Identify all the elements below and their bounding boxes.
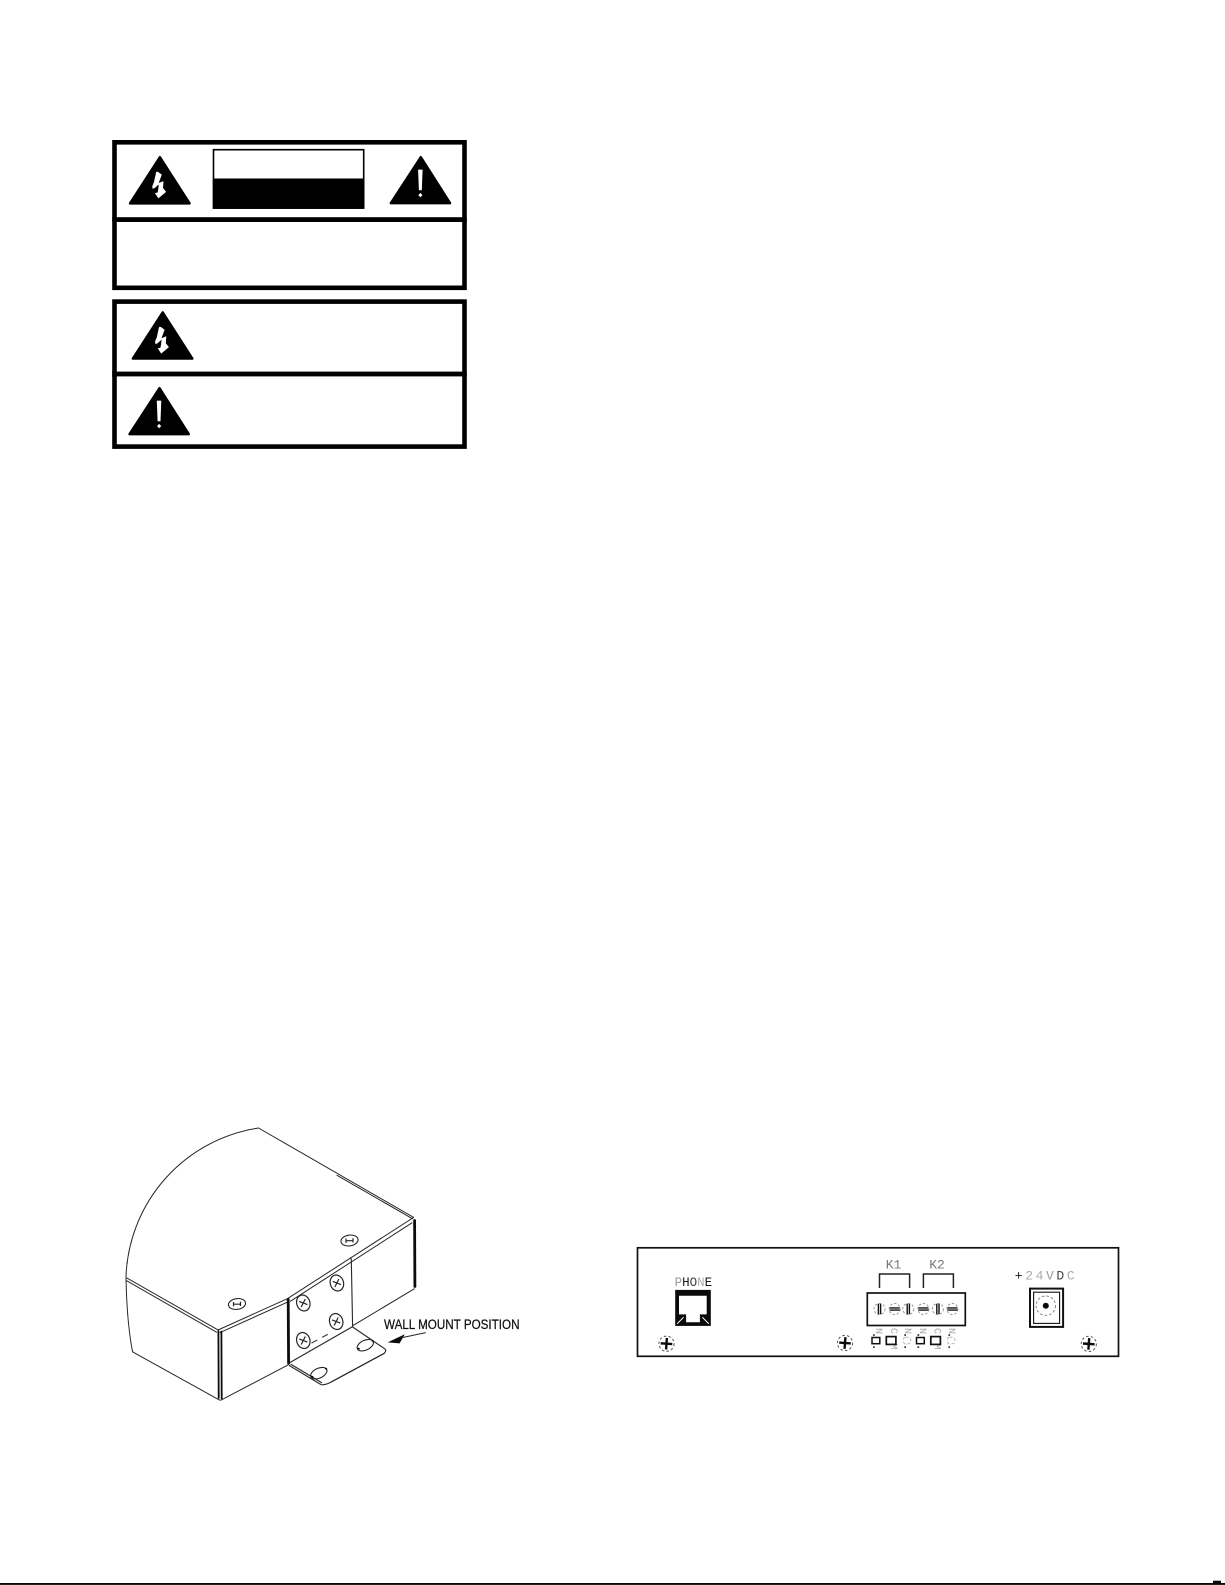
svg-text:N: N (901, 1328, 912, 1334)
svg-text:N: N (872, 1328, 883, 1334)
svg-text:N: N (916, 1328, 927, 1334)
svg-text:C: C (930, 1328, 941, 1334)
svg-text:PHONE: PHONE (675, 1276, 713, 1290)
svg-text:+24VDC: +24VDC (1015, 1268, 1077, 1283)
svg-text:C: C (887, 1328, 898, 1334)
svg-text:K2: K2 (929, 1258, 945, 1273)
svg-text:K1: K1 (886, 1258, 902, 1273)
svg-text:WALL MOUNT POSITION: WALL MOUNT POSITION (384, 1317, 520, 1332)
svg-text:N: N (945, 1328, 956, 1334)
